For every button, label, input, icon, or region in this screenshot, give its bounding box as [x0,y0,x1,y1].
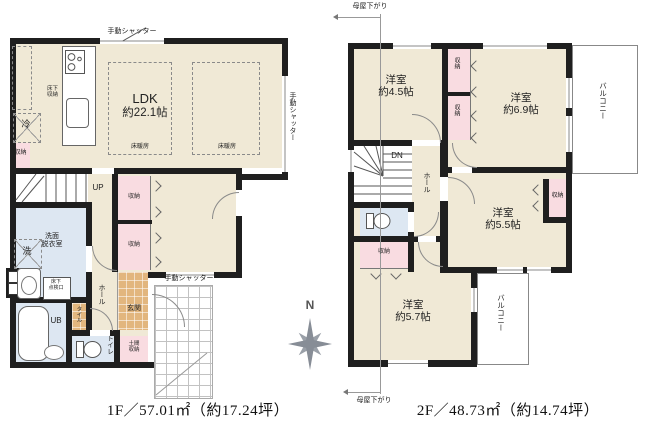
wall [354,236,414,242]
underfloor-storage-label: 床下 収納 [42,86,63,99]
doma-l2: 収納 [120,347,148,353]
storage-label: 収納 [11,150,30,157]
moya-line-top [338,17,381,18]
closet-2f-b [448,96,470,140]
bath-bowl [44,345,64,360]
shutter-label-bottom: 手動シャッター [160,275,218,283]
vanity-bowl [21,276,37,295]
window [497,267,523,273]
door-opening [440,177,448,201]
wall [566,43,572,173]
moya-label-top: 母屋下がり [342,3,398,11]
caption-2f: 2F／48.73㎡（約14.74坪） [392,399,624,420]
floor-heating-label: 床暖房 [131,144,149,151]
closet-2f-a [448,49,470,92]
underfloor-storage-l2: 収納 [42,92,63,98]
toilet-label-1f: トイレ [105,335,112,363]
room-4-5-size: 約4.5帖 [368,86,424,98]
dn-label: DN [386,151,408,160]
window [282,76,288,172]
wall [543,217,566,223]
storage-label: 収納 [120,194,148,201]
shutter-label-top: 手動シャッター [98,28,166,36]
counter-dashed [12,46,32,110]
room-5-5-name: 洋室 [474,207,532,219]
window [393,43,431,49]
room-4-5-label: 洋室 約4.5帖 [368,74,424,98]
storage-label-2f: 収納 [548,193,567,200]
window [566,116,572,152]
wall [471,267,477,363]
wall [10,202,92,208]
stairs-up-lines [16,174,88,202]
room-5-7-east-strip [440,267,471,360]
window [527,267,551,273]
balcony-label-bottom: バルコニー [497,294,505,356]
washroom-l2: 脱衣室 [30,241,74,249]
wall [348,43,354,150]
compass-n-label: N [303,299,317,313]
porch-diagonal [154,285,211,397]
floor-heating-zone [108,62,172,155]
toilet-icon [366,211,392,231]
hall-label-2f: ホール [423,172,430,200]
hall-label-1f: ホール [98,284,105,310]
wall [10,362,154,368]
caption-1f: 1F／57.01㎡（約17.24坪） [82,399,314,420]
wall [448,92,470,96]
opening [92,168,114,174]
storage-label-2f: 収納 [453,104,459,134]
window [566,78,572,108]
door-opening [86,246,92,272]
floor-heating-label: 床暖房 [218,144,236,151]
storage-label-2f: 収納 [371,249,397,256]
kitchen-sink [66,98,89,128]
washroom-label: 洗面 脱衣室 [30,233,74,249]
stove-icon [65,50,85,74]
window [471,288,477,312]
floor-plan-canvas: 手動シャッター 手動シャッター 手動シャッター LDK 約22.1帖 床暖房 床… [0,0,650,429]
wall [112,220,152,224]
window [483,43,547,49]
moya-arrow [343,389,348,395]
moya-line-vertical [380,14,381,394]
fridge-label: 冷 [13,119,39,129]
room-6-9-size: 約6.9帖 [492,104,550,116]
room-5-7-label: 洋室 約5.7帖 [384,299,442,323]
inspection-label: 床下 点検口 [43,280,69,292]
room-6-9-name: 洋室 [492,92,550,104]
moya-line-bottom [348,392,381,393]
balcony-label-top: バルコニー [599,82,607,144]
closet-door-line [360,268,408,269]
up-label: UP [86,183,110,192]
washroom-l1: 洗面 [30,233,74,241]
inspection-l2: 点検口 [43,286,69,292]
floor-heating-zone [192,62,260,155]
genkan-step-line [117,272,118,330]
room-4-5-name: 洋室 [368,74,424,86]
window [388,360,428,367]
window [100,38,164,44]
room-6-9-label: 洋室 約6.9帖 [492,92,550,116]
room-5-7-name: 洋室 [384,299,442,311]
entrance-genkan [118,272,148,330]
room-5-5-size: 約5.5帖 [474,219,532,231]
shutter-label-right: 手動シャッター [289,92,296,152]
toilet-icon [76,339,103,360]
doma-storage-label: 土間 収納 [120,341,148,354]
compass-rose-icon [282,316,338,372]
door-opening [452,167,472,173]
storage-label-2f: 収納 [453,57,459,87]
wall [354,202,414,208]
entrance-label: 玄関 [122,305,146,313]
room-5-7-size: 約5.7帖 [384,311,442,323]
ub-label: UB [46,316,66,325]
storage-label: 収納 [120,242,148,249]
moya-arrow [333,14,338,20]
wall [236,174,288,180]
room-5-5-label: 洋室 約5.5帖 [474,207,532,231]
tile-strip-label: タイル [75,306,81,330]
closet-door-line [470,49,471,140]
wall [566,173,572,273]
